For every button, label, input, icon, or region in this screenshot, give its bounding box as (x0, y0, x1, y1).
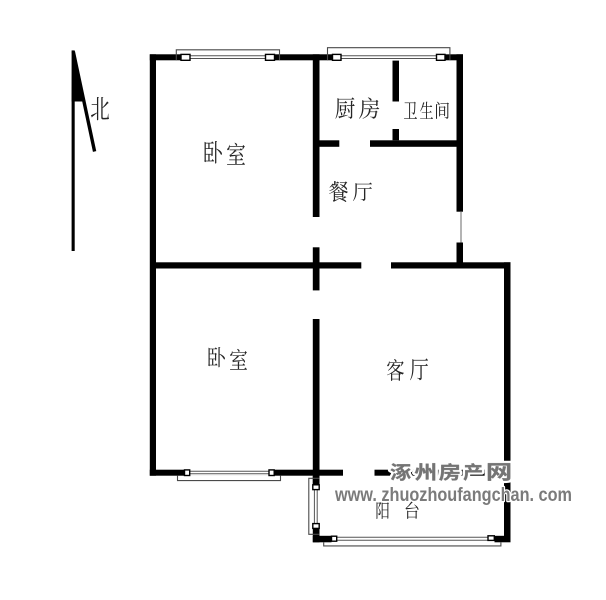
svg-text:www. zhuozhoufangchan. com: www. zhuozhoufangchan. com (334, 485, 572, 506)
